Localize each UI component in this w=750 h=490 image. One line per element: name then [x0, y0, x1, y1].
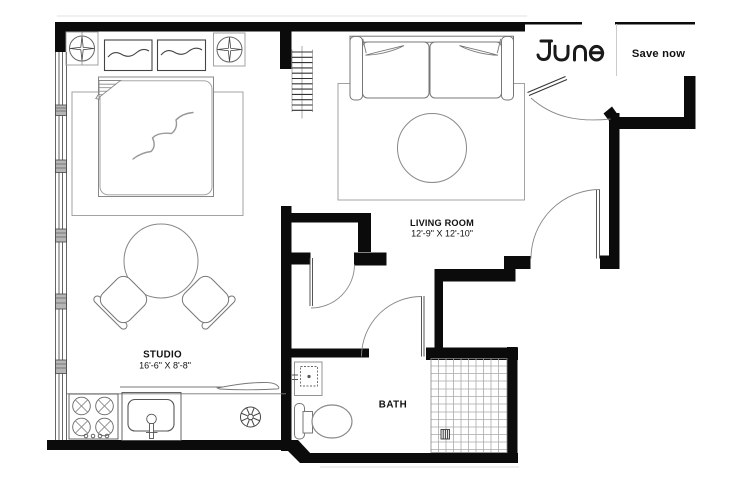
svg-text:12'-9" X 12'-10": 12'-9" X 12'-10" — [411, 229, 473, 239]
svg-text:BATH: BATH — [379, 400, 407, 411]
svg-text:LIVING ROOM: LIVING ROOM — [410, 218, 474, 228]
svg-text:16'-6" X 8'-8": 16'-6" X 8'-8" — [139, 361, 191, 371]
svg-text:STUDIO: STUDIO — [143, 350, 182, 361]
svg-text:Save now: Save now — [632, 48, 685, 60]
